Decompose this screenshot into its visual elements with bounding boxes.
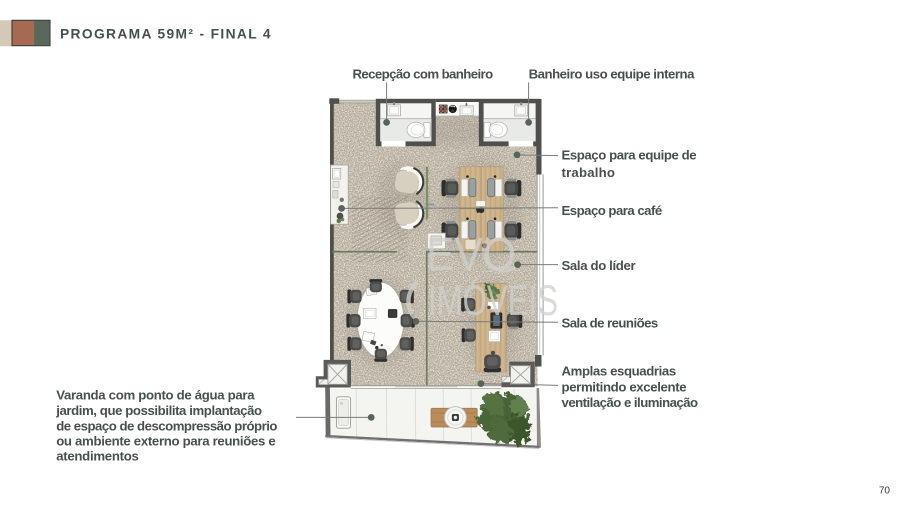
svg-text:jardim, que possibilita implan: jardim, que possibilita implantação (55, 403, 262, 418)
svg-text:IMÓVEIS: IMÓVEIS (428, 277, 558, 325)
svg-text:Amplas esquadrias: Amplas esquadrias (562, 363, 676, 378)
svg-text:permitindo excelente: permitindo excelente (562, 379, 687, 394)
svg-text:ventilação e iluminação: ventilação e iluminação (562, 395, 699, 410)
svg-text:Sala de reuniões: Sala de reuniões (562, 316, 658, 331)
svg-text:de espaço de descompressão pró: de espaço de descompressão próprio (56, 418, 277, 433)
svg-text:ou ambiente externo para reuni: ou ambiente externo para reuniões e (56, 434, 275, 449)
svg-text:trabalho: trabalho (562, 165, 616, 180)
svg-text:Espaço para café: Espaço para café (562, 203, 662, 218)
svg-text:Espaço para equipe de: Espaço para equipe de (562, 148, 697, 163)
svg-text:Recepção com banheiro: Recepção com banheiro (353, 67, 494, 82)
svg-text:PROGRAMA 59M² - FINAL 4: PROGRAMA 59M² - FINAL 4 (60, 27, 272, 42)
svg-text:atendimentos: atendimentos (56, 449, 138, 464)
svg-text:70: 70 (879, 486, 891, 497)
svg-text:Banheiro uso equipe interna: Banheiro uso equipe interna (529, 67, 696, 82)
svg-text:Varanda com ponto de água para: Varanda com ponto de água para (56, 388, 255, 403)
svg-text:Sala do líder: Sala do líder (562, 258, 636, 273)
